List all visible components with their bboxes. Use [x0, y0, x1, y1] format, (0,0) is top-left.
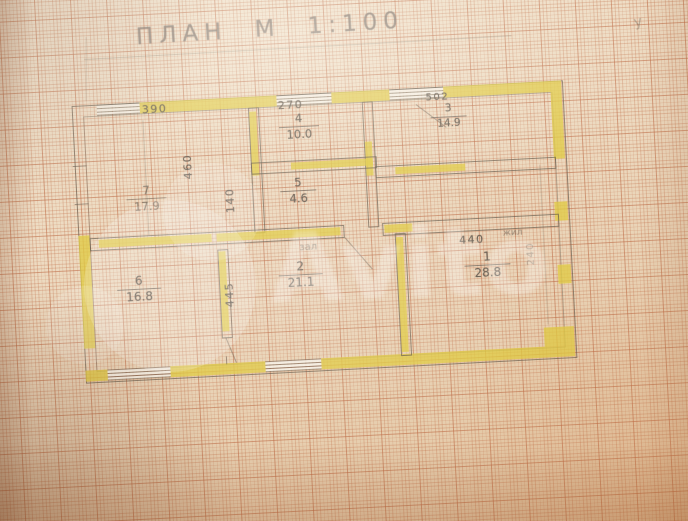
right-wall-pillar-2 [558, 264, 572, 284]
floor-plan-photo: ПЛАН М 1:100 у [0, 0, 688, 521]
window-top-1 [97, 102, 141, 115]
room-5-label: 5 4.6 [280, 175, 317, 205]
yellow-wall-bottom-1 [85, 370, 108, 382]
plan-title: ПЛАН М 1:100 [135, 3, 476, 50]
corner-scribble: у [632, 14, 644, 31]
room-3-label: 3 14.9 [430, 102, 467, 130]
yellow-wall-bottom-right-corner [544, 326, 576, 358]
room-5-area: 4.6 [280, 190, 317, 206]
dim-390: 390 [141, 102, 167, 116]
watermark-circle-medium [163, 163, 261, 261]
room-4-label: 4 10.0 [278, 111, 319, 141]
watermark-text: Avito [268, 205, 552, 325]
watermark-circle-small [46, 286, 124, 364]
room-4-area: 10.0 [279, 126, 320, 142]
margin-line [86, 37, 87, 101]
room-3-area: 14.9 [431, 116, 468, 130]
